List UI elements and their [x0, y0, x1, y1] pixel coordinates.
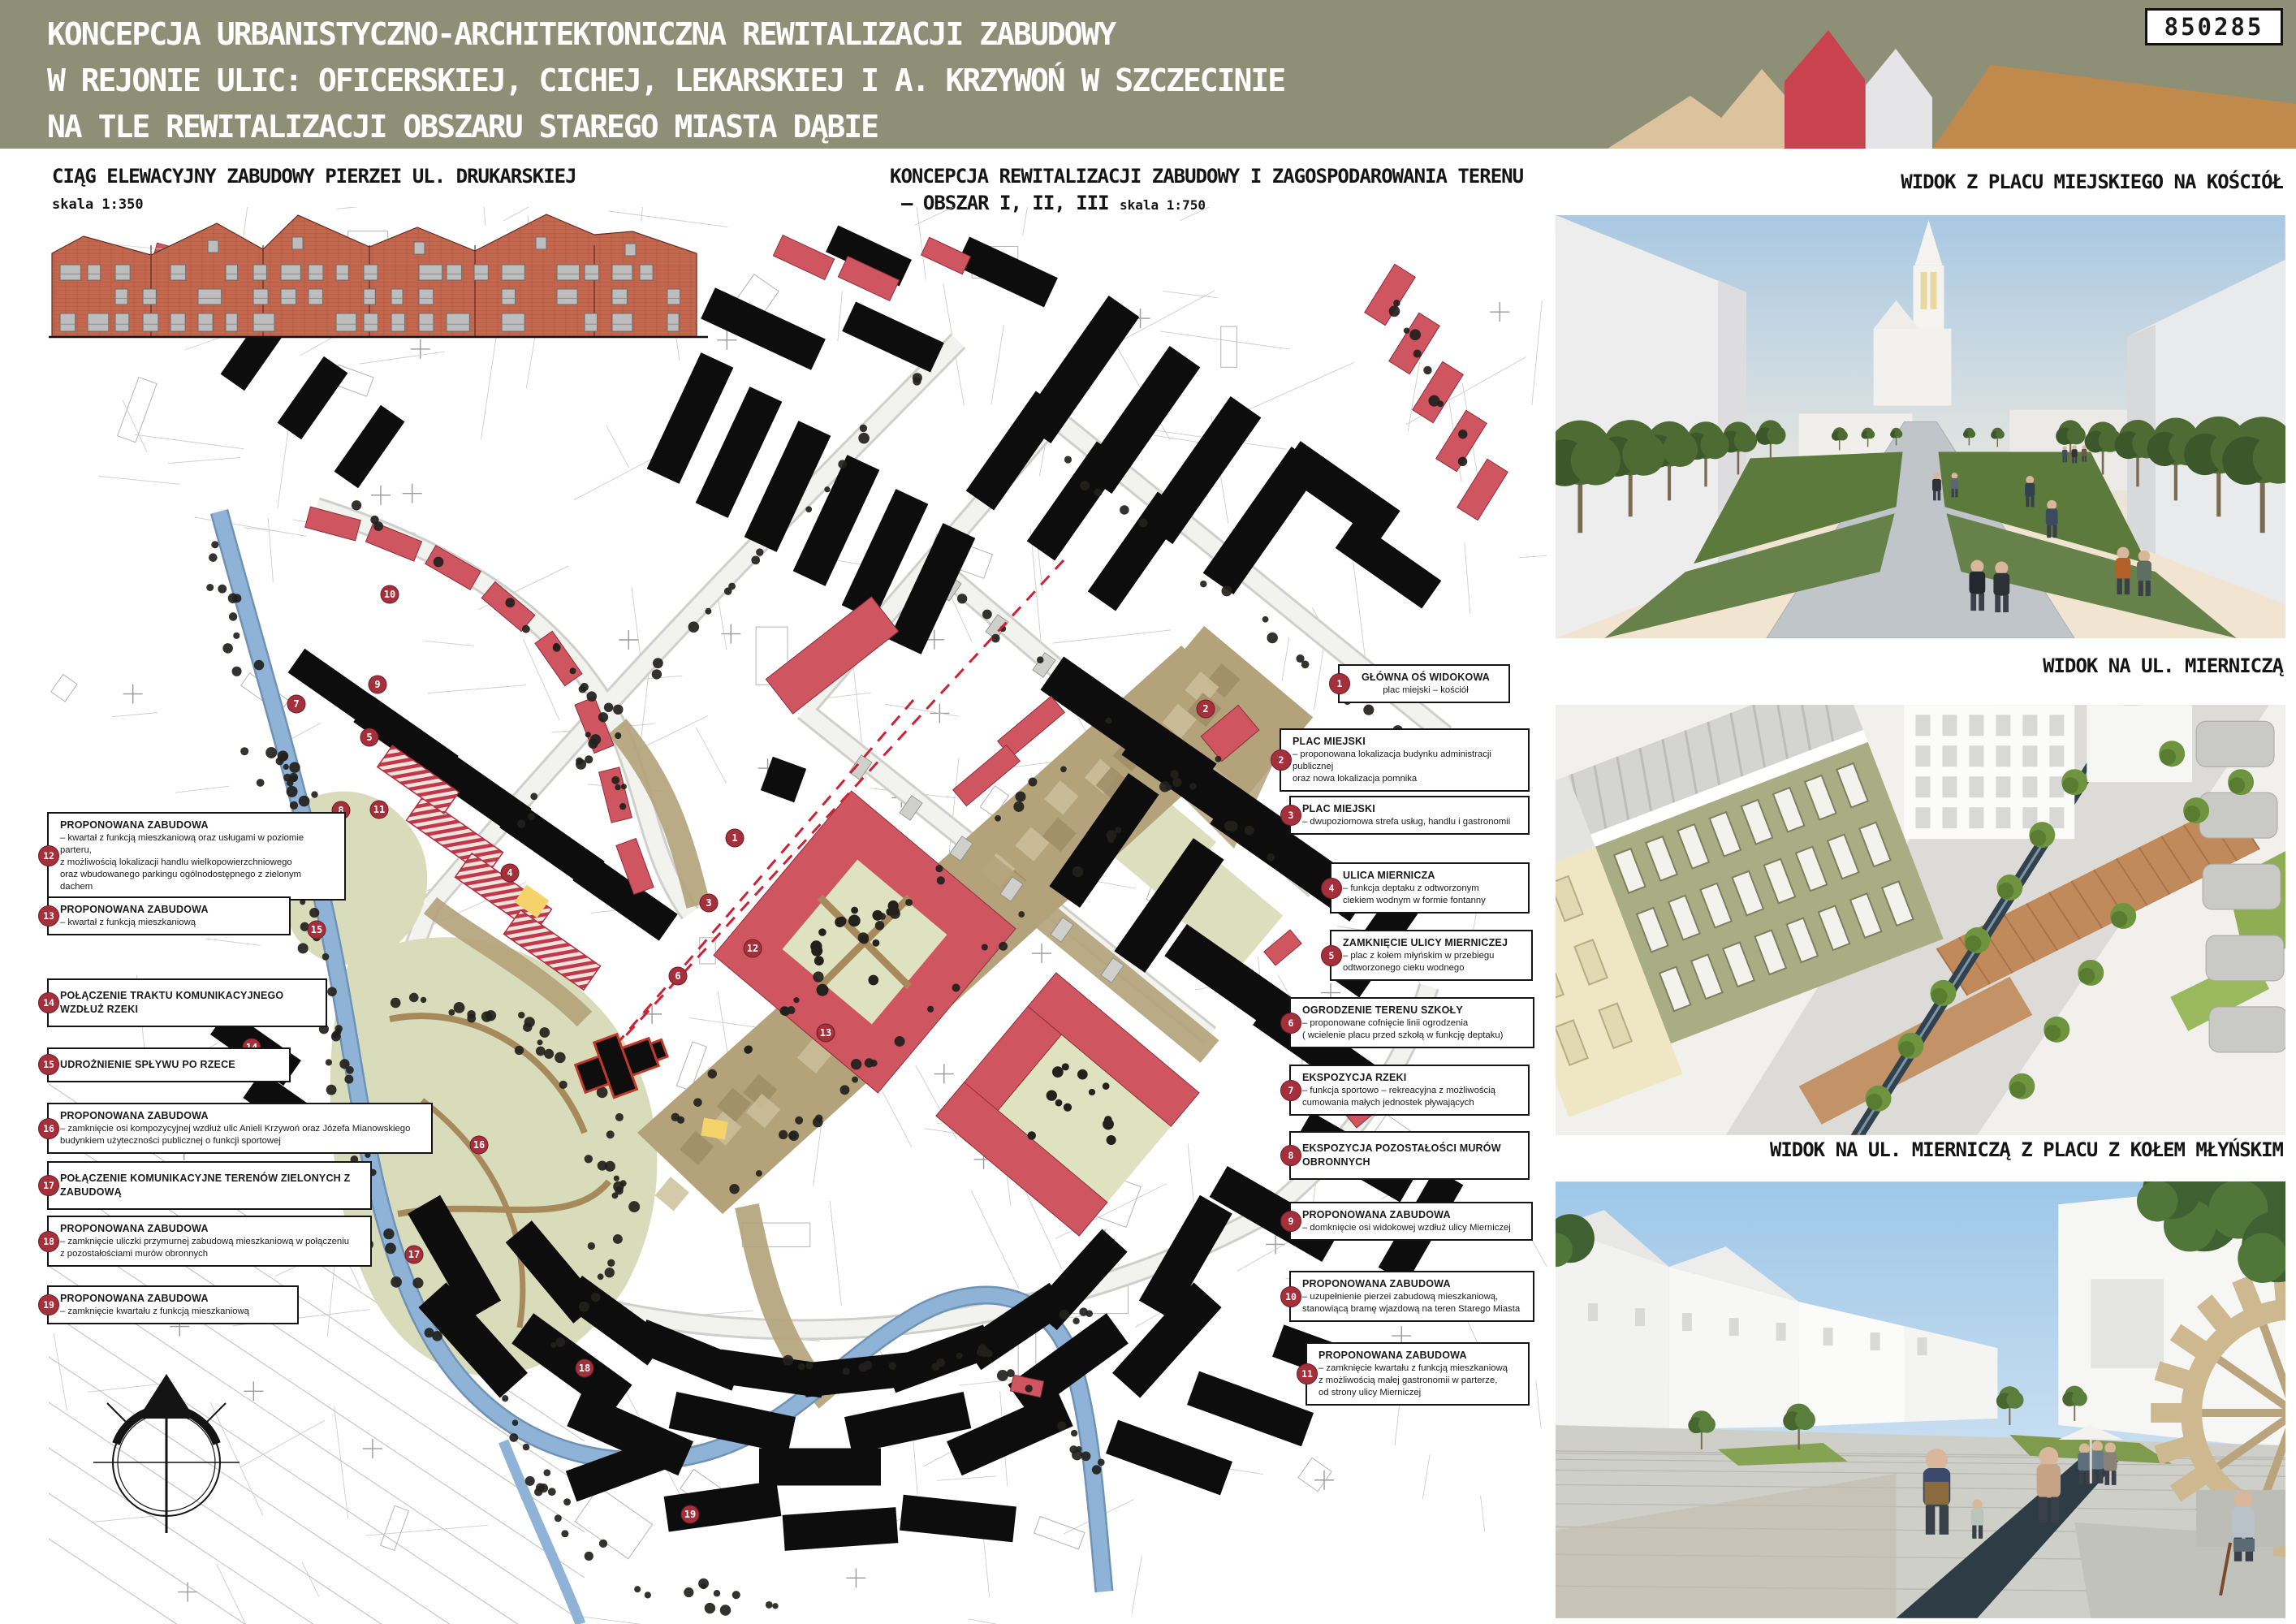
callout-title: PROPONOWANA ZABUDOWA [1302, 1208, 1523, 1222]
callout-body: – kwartał z funkcją mieszkaniową oraz us… [60, 832, 336, 894]
callout-body: – proponowana lokalizacja budynku admini… [1293, 749, 1520, 785]
svg-text:9: 9 [374, 679, 380, 690]
svg-text:19: 19 [684, 1509, 696, 1520]
elevation-panel-title: CIĄG ELEWACYJNY ZABUDOWY PIERZEI UL. DRU… [52, 165, 576, 188]
callout-title: OGRODZENIE TERENU SZKOŁY [1302, 1004, 1525, 1017]
callout-body: plac miejski – kościół [1351, 685, 1500, 697]
callout-11: 11 PROPONOWANA ZABUDOWA – zamknięcie kwa… [1306, 1342, 1530, 1406]
callout-title: ZAMKNIĘCIE ULICY MIERNICZEJ [1343, 936, 1523, 950]
svg-text:15: 15 [311, 924, 322, 935]
callout-title: POŁĄCZENIE KOMUNIKACYJNE TERENÓW ZIELONY… [60, 1172, 362, 1199]
callout-body: – zamknięcie uliczki przymurnej zabudową… [60, 1236, 362, 1260]
elevation-drawing [49, 213, 723, 351]
callout-13: 13 PROPONOWANA ZABUDOWA – kwartał z funk… [47, 896, 291, 935]
svg-text:5: 5 [366, 732, 372, 743]
svg-text:10: 10 [384, 589, 395, 600]
callout-18-badge: 18 [38, 1231, 59, 1252]
callout-14: 14 POŁĄCZENIE TRAKTU KOMUNIKACYJNEGO WZD… [47, 978, 327, 1027]
callout-title: PROPONOWANA ZABUDOWA [60, 903, 281, 917]
header-band: KONCEPCJA URBANISTYCZNO-ARCHITEKTONICZNA… [0, 0, 2296, 149]
callout-8-badge: 8 [1280, 1145, 1301, 1166]
callout-title: PROPONOWANA ZABUDOWA [60, 1222, 362, 1236]
svg-text:2: 2 [1202, 703, 1208, 715]
svg-text:13: 13 [820, 1027, 831, 1039]
board-number-badge: 850285 [2145, 8, 2283, 45]
callout-14-badge: 14 [38, 992, 59, 1013]
callout-5-badge: 5 [1321, 945, 1342, 966]
callout-body: – zamknięcie kwartału z funkcją mieszkan… [1318, 1363, 1520, 1399]
svg-text:3: 3 [706, 897, 711, 909]
callout-body: – domknięcie osi widokowej wzdłuż ulicy … [1302, 1222, 1523, 1234]
callout-title: PROPONOWANA ZABUDOWA [1318, 1349, 1520, 1363]
callout-title: PROPONOWANA ZABUDOWA [60, 818, 336, 832]
callout-10-badge: 10 [1280, 1286, 1301, 1307]
callout-6-badge: 6 [1280, 1013, 1301, 1034]
competition-board: KONCEPCJA URBANISTYCZNO-ARCHITEKTONICZNA… [0, 0, 2296, 1624]
callout-body: – kwartał z funkcją mieszkaniową [60, 917, 281, 929]
callout-1: 1 GŁÓWNA OŚ WIDOKOWA plac miejski – kośc… [1338, 664, 1510, 703]
callout-7-badge: 7 [1280, 1080, 1301, 1101]
svg-text:16: 16 [473, 1139, 485, 1151]
callout-2: 2 PLAC MIEJSKI – proponowana lokalizacja… [1280, 728, 1530, 792]
callout-4-badge: 4 [1321, 878, 1342, 899]
callout-3-badge: 3 [1280, 805, 1301, 826]
callout-body: – uzupełnienie pierzei zabudową mieszkan… [1302, 1291, 1525, 1315]
svg-text:18: 18 [579, 1363, 590, 1374]
callout-16: 16 PROPONOWANA ZABUDOWA – zamknięcie osi… [47, 1103, 433, 1154]
render-ul-miernicza [1556, 705, 2285, 1135]
callout-15-badge: 15 [38, 1054, 59, 1075]
callout-title: PROPONOWANA ZABUDOWA [60, 1109, 423, 1123]
callout-body: – funkcja sportowo – rekreacyjna z możli… [1302, 1085, 1520, 1109]
callout-title: EKSPOZYCJA POZOSTAŁOŚCI MURÓW OBRONNYCH [1302, 1142, 1520, 1169]
render3-title: WIDOK NA UL. MIERNICZĄ Z PLACU Z KOŁEM M… [1770, 1138, 2283, 1161]
svg-text:7: 7 [293, 698, 299, 710]
svg-text:17: 17 [408, 1249, 420, 1260]
svg-text:4: 4 [507, 867, 512, 879]
callout-11-badge: 11 [1297, 1363, 1318, 1384]
render-plac-miejski [1556, 215, 2285, 638]
callout-17-badge: 17 [38, 1175, 59, 1196]
callout-15: 15 UDROŻNIENIE SPŁYWU PO RZECE [47, 1047, 291, 1082]
callout-19: 19 PROPONOWANA ZABUDOWA – zamknięcie kwa… [47, 1285, 299, 1324]
callout-19-badge: 19 [38, 1294, 59, 1315]
callout-8: 8 EKSPOZYCJA POZOSTAŁOŚCI MURÓW OBRONNYC… [1289, 1131, 1530, 1180]
svg-text:11: 11 [373, 804, 385, 815]
callout-18: 18 PROPONOWANA ZABUDOWA – zamknięcie uli… [47, 1216, 372, 1267]
callout-title: PROPONOWANA ZABUDOWA [60, 1292, 289, 1306]
callout-9-badge: 9 [1280, 1211, 1301, 1232]
callout-1-badge: 1 [1329, 673, 1350, 694]
callout-13-badge: 13 [38, 905, 59, 926]
callout-body: – proponowane cofnięcie linii ogrodzenia… [1302, 1017, 1525, 1042]
north-compass-icon [93, 1374, 240, 1533]
callout-title: PLAC MIEJSKI [1302, 802, 1520, 816]
callout-title: EKSPOZYCJA RZEKI [1302, 1071, 1520, 1085]
callout-title: ULICA MIERNICZA [1343, 869, 1520, 883]
callout-3: 3 PLAC MIEJSKI – dwupoziomowa strefa usł… [1289, 796, 1530, 835]
callout-4: 4 ULICA MIERNICZA – funkcja deptaku z od… [1330, 862, 1530, 914]
callout-title: GŁÓWNA OŚ WIDOKOWA [1351, 671, 1500, 685]
callout-body: – zamknięcie osi kompozycyjnej wzdłuż ul… [60, 1123, 423, 1147]
callout-9: 9 PROPONOWANA ZABUDOWA – domknięcie osi … [1289, 1202, 1533, 1241]
callout-12-badge: 12 [38, 845, 59, 866]
callout-body: – funkcja deptaku z odtworzonym ciekiem … [1343, 883, 1520, 907]
plan-panel-title: KONCEPCJA REWITALIZACJI ZABUDOWY I ZAGOS… [890, 165, 1523, 188]
callout-5: 5 ZAMKNIĘCIE ULICY MIERNICZEJ – plac z k… [1330, 930, 1533, 981]
board-title: KONCEPCJA URBANISTYCZNO-ARCHITEKTONICZNA… [47, 11, 1284, 150]
callout-body: – zamknięcie kwartału z funkcją mieszkan… [60, 1306, 289, 1318]
callout-10: 10 PROPONOWANA ZABUDOWA – uzupełnienie p… [1289, 1271, 1534, 1322]
render2-title: WIDOK NA UL. MIERNICZĄ [2043, 654, 2283, 677]
callout-title: PLAC MIEJSKI [1293, 735, 1520, 749]
callout-title: POŁĄCZENIE TRAKTU KOMUNIKACYJNEGO WZDŁUŻ… [60, 989, 317, 1017]
callout-17: 17 POŁĄCZENIE KOMUNIKACYJNE TERENÓW ZIEL… [47, 1161, 372, 1210]
svg-text:1: 1 [732, 832, 737, 844]
callout-6: 6 OGRODZENIE TERENU SZKOŁY – proponowane… [1289, 997, 1534, 1048]
callout-title: PROPONOWANA ZABUDOWA [1302, 1277, 1525, 1291]
callout-2-badge: 2 [1271, 749, 1292, 771]
svg-text:12: 12 [747, 943, 758, 954]
svg-text:6: 6 [675, 970, 680, 982]
callout-body: – dwupoziomowa strefa usług, handlu i ga… [1302, 816, 1520, 828]
render1-title: WIDOK Z PLACU MIEJSKIEGO NA KOŚCIÓŁ [1901, 171, 2283, 193]
callout-title: UDROŻNIENIE SPŁYWU PO RZECE [60, 1058, 281, 1072]
callout-7: 7 EKSPOZYCJA RZEKI – funkcja sportowo – … [1289, 1065, 1530, 1116]
callout-16-badge: 16 [38, 1118, 59, 1139]
callout-body: – plac z kołem młyńskim w przebiegu odtw… [1343, 950, 1523, 974]
render-plac-kolo-mlynskie [1556, 1181, 2285, 1618]
callout-12: 12 PROPONOWANA ZABUDOWA – kwartał z funk… [47, 812, 346, 901]
